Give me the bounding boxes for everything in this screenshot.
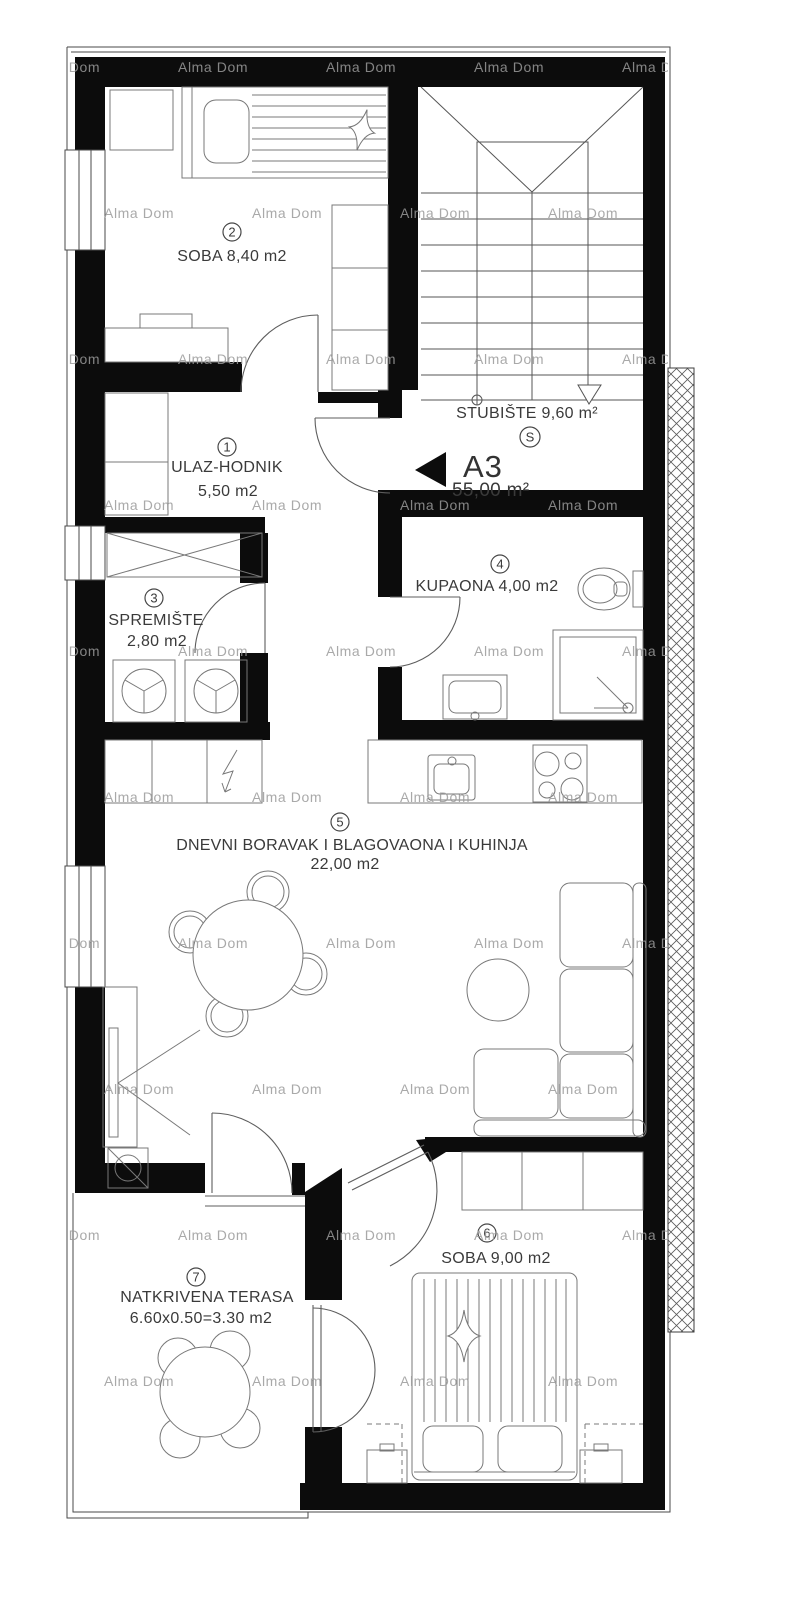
svg-text:7: 7 (192, 1270, 199, 1285)
watermark-text: Alma Dom (548, 497, 618, 513)
room-label-terasa: 7 NATKRIVENA TERASA6.60x0.50=3.30 m2 (120, 1268, 293, 1327)
watermark-text: Alma Dom (104, 205, 174, 221)
room-label-dnevni: 5 DNEVNI BORAVAK I BLAGOVAONA I KUHINJA2… (176, 813, 528, 873)
svg-text:22,00 m2: 22,00 m2 (310, 856, 379, 873)
svg-text:4: 4 (496, 557, 503, 572)
watermark-text: Alma Dom (252, 1081, 322, 1097)
watermark-text: Alma Dom (252, 497, 322, 513)
unit-entry-arrow-icon (415, 452, 446, 487)
star-icon (448, 1310, 480, 1362)
coffee-table-icon (467, 959, 529, 1021)
watermark-text: Alma Dom (548, 789, 618, 805)
watermark-text: Alma Dom (252, 205, 322, 221)
terrace-table-icon (160, 1347, 250, 1437)
svg-text:S: S (526, 430, 535, 445)
watermark-text: Alma Dom (326, 1227, 396, 1243)
watermark-text: Alma Dom (474, 1227, 544, 1243)
watermark-text: Alma Dom (104, 497, 174, 513)
watermark-text: Alma Dom (104, 1373, 174, 1389)
svg-text:SOBA 9,00 m2: SOBA 9,00 m2 (441, 1250, 550, 1267)
room-label-ulaz: 1 ULAZ-HODNIK5,50 m2 (171, 438, 283, 500)
watermark-text: Alma Dom (30, 59, 100, 75)
dining-set-icon (169, 871, 327, 1037)
room-label-kupaona: 4 KUPAONA 4,00 m2 (416, 555, 559, 595)
pillow-icon (423, 1426, 483, 1472)
watermark-text: Alma Dom (326, 351, 396, 367)
door-arc-icon (241, 315, 318, 392)
nightstand-icon (367, 1444, 407, 1483)
dining-table-icon (193, 900, 303, 1010)
svg-text:6.60x0.50=3.30 m2: 6.60x0.50=3.30 m2 (130, 1310, 273, 1327)
toilet-icon (578, 568, 643, 610)
window-icon (65, 150, 105, 250)
svg-text:SPREMIŠTE: SPREMIŠTE (108, 610, 203, 629)
watermark-text: Alma Dom (326, 643, 396, 659)
unit-code: A3 (463, 449, 503, 484)
watermark-text: Alma Dom (104, 1081, 174, 1097)
door-arc-icon (212, 1113, 292, 1193)
washing-machine-icon (113, 660, 175, 722)
svg-text:DNEVNI BORAVAK I BLAGOVAONA I: DNEVNI BORAVAK I BLAGOVAONA I KUHINJA (176, 837, 528, 854)
watermark-text: Alma Dom (326, 935, 396, 951)
closet-icon (110, 90, 173, 150)
svg-text:5,50 m2: 5,50 m2 (198, 483, 258, 500)
svg-text:ULAZ-HODNIK: ULAZ-HODNIK (171, 459, 283, 476)
watermark-text: Alma Dom (400, 1373, 470, 1389)
watermark-text: Alma Dom (178, 643, 248, 659)
watermark-text: Alma Dom (548, 1081, 618, 1097)
watermark-text: Alma Dom (400, 1081, 470, 1097)
sofa-icon (474, 883, 646, 1137)
watermark-text: Alma Dom (252, 789, 322, 805)
watermark-text: Alma Dom (30, 1227, 100, 1243)
hatched-wall-strip (668, 368, 694, 1332)
watermark-text: Alma Dom (178, 351, 248, 367)
watermark-text: Alma Dom (178, 1227, 248, 1243)
svg-text:5: 5 (336, 815, 343, 830)
watermark-text: Alma Dom (400, 205, 470, 221)
wardrobe-icon (462, 1152, 643, 1210)
watermark-text: Alma Dom (400, 497, 470, 513)
watermark-text: Alma Dom (622, 59, 692, 75)
door-arc-icon (390, 597, 460, 667)
svg-text:SOBA 8,40 m2: SOBA 8,40 m2 (177, 248, 286, 265)
watermark-text: Alma Dom (474, 351, 544, 367)
door-arc-icon (348, 1145, 437, 1266)
terrace-set-icon (158, 1331, 260, 1458)
watermark-text: Alma Dom (104, 789, 174, 805)
sink-icon (443, 675, 507, 720)
svg-text:NATKRIVENA TERASA: NATKRIVENA TERASA (120, 1289, 293, 1306)
watermark-text: Alma Dom (622, 351, 692, 367)
window-icon (65, 526, 105, 580)
floor-plan-canvas: 2 SOBA 8,40 m2 1 ULAZ-HODNIK5,50 m2 3 SP… (0, 0, 792, 1600)
window-icon (65, 866, 105, 987)
svg-text:STUBIŠTE 9,60 m²: STUBIŠTE 9,60 m² (456, 403, 598, 422)
star-icon (344, 106, 379, 153)
watermark-text: Alma Dom (252, 1373, 322, 1389)
pillow-icon (498, 1426, 562, 1472)
door-arc-icon (315, 418, 390, 493)
svg-text:KUPAONA 4,00 m2: KUPAONA 4,00 m2 (416, 578, 559, 595)
washing-machine-icon (185, 660, 247, 722)
watermark-text: Alma Dom (474, 643, 544, 659)
folding-door-icon (313, 1305, 375, 1432)
bed-icon (182, 87, 388, 178)
watermark-text: Alma Dom (474, 59, 544, 75)
svg-text:1: 1 (223, 440, 230, 455)
room-label-spremiste: 3 SPREMIŠTE2,80 m2 (108, 589, 203, 650)
watermark-text: Alma Dom (30, 351, 100, 367)
tv-cabinet-icon (103, 987, 200, 1147)
stairwell-label: STUBIŠTE 9,60 m² S (456, 403, 598, 447)
pillow-icon (204, 100, 249, 163)
watermark-text: Alma Dom (474, 935, 544, 951)
dishwasher-bolt-icon (222, 750, 237, 792)
svg-text:3: 3 (150, 591, 157, 606)
furniture (103, 87, 646, 1483)
watermark-text: Alma Dom (548, 1373, 618, 1389)
watermark-text: Alma Dom (400, 789, 470, 805)
nightstand-icon (580, 1444, 622, 1483)
svg-text:2: 2 (228, 225, 235, 240)
watermark-text: Alma Dom (548, 205, 618, 221)
watermark-text: Alma Dom (326, 59, 396, 75)
watermark-text: Alma Dom (178, 59, 248, 75)
floor-plan-drawing: 2 SOBA 8,40 m2 1 ULAZ-HODNIK5,50 m2 3 SP… (0, 0, 792, 1600)
direction-arrow-icon (578, 385, 601, 404)
threshold-icon (205, 1196, 305, 1206)
watermark-text: Alma Dom (178, 935, 248, 951)
room-label-soba2: 2 SOBA 8,40 m2 (177, 223, 286, 265)
watermark-text: Alma Dom (30, 643, 100, 659)
shelf-icon (107, 533, 262, 577)
